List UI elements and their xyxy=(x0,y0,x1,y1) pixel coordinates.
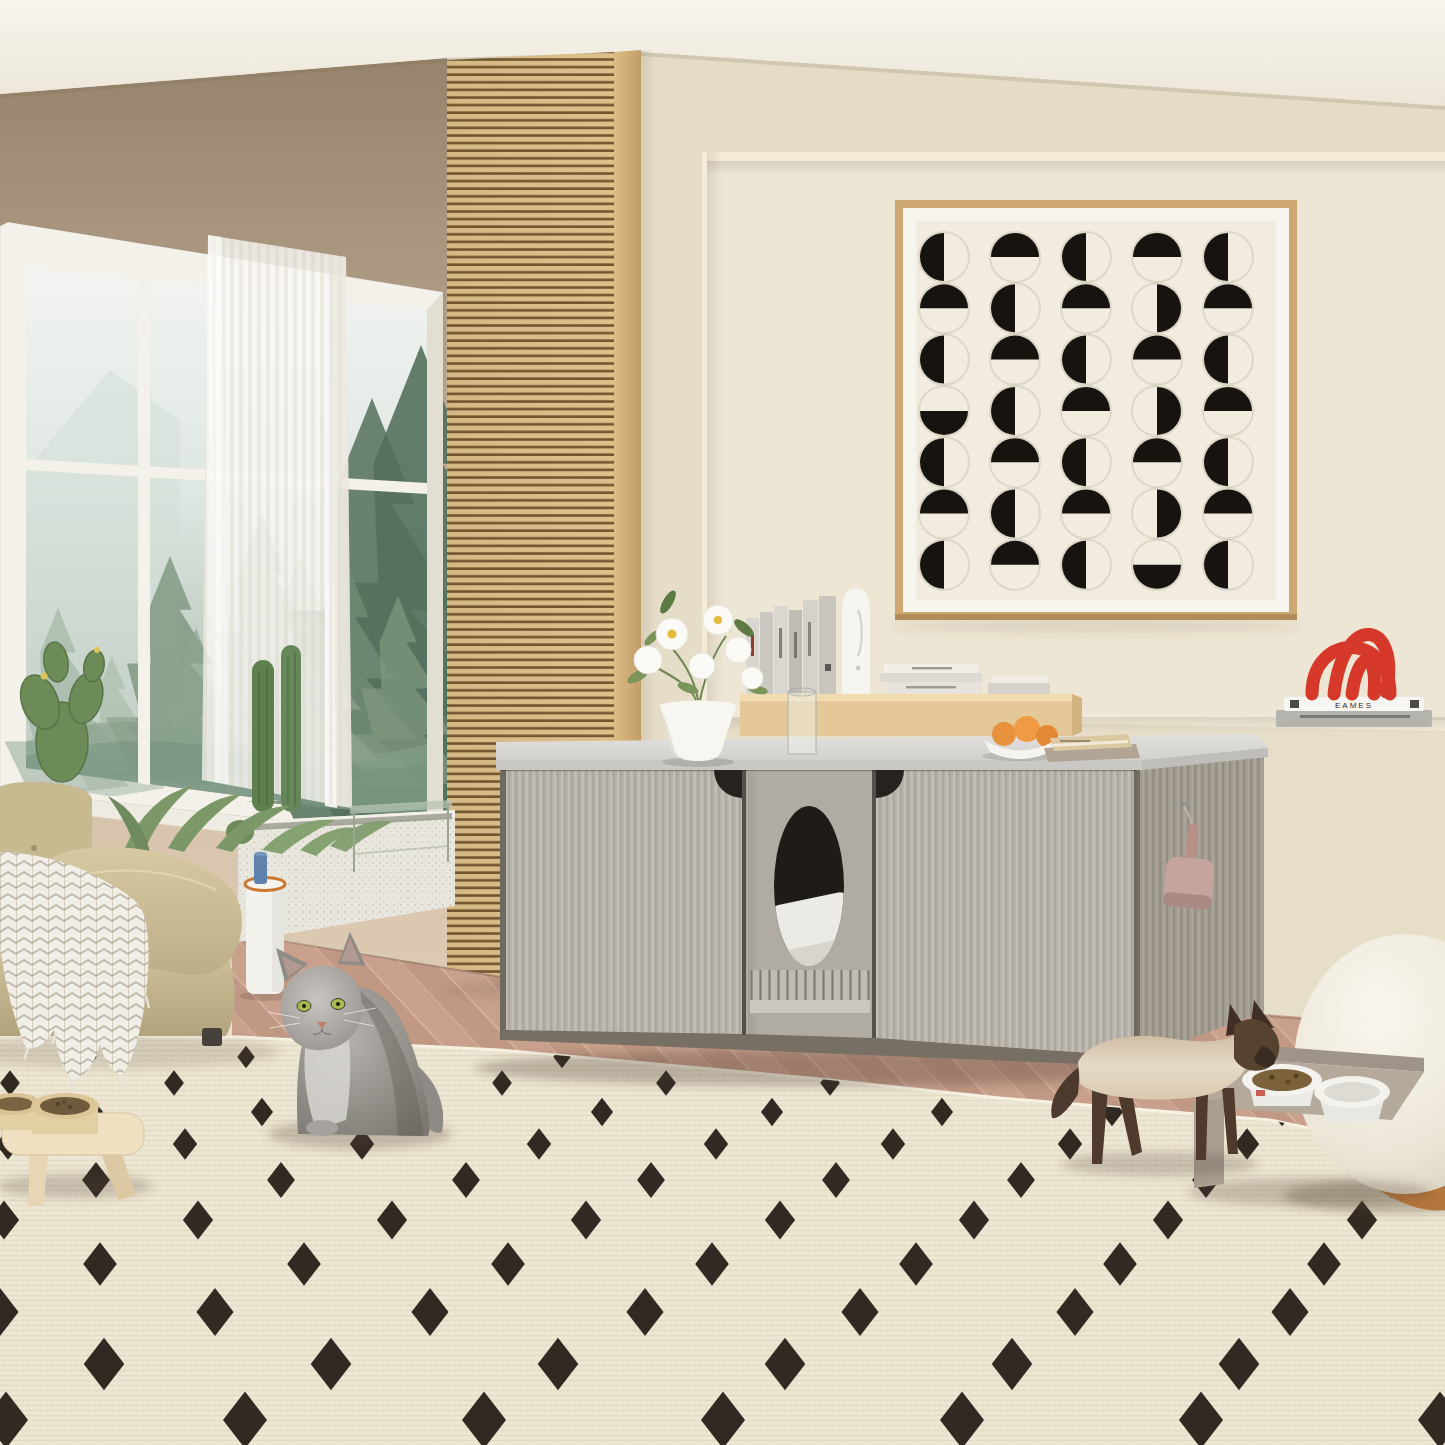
grate-lip xyxy=(750,1000,870,1013)
counter-front-edge xyxy=(496,760,1142,770)
window-jamb-right xyxy=(427,292,443,838)
corner-books xyxy=(1044,734,1140,762)
flower-center xyxy=(668,630,677,639)
feeder-right-shadow xyxy=(1188,1178,1432,1206)
wood-bowl-2 xyxy=(31,1093,99,1134)
cat-head xyxy=(281,966,362,1050)
door-gap-right xyxy=(872,770,876,1038)
book-logo-right xyxy=(1410,700,1419,708)
book-logo-left xyxy=(1290,700,1299,708)
tuft-button xyxy=(31,845,37,851)
living-room-scene: EAMES xyxy=(0,0,1445,1445)
door-gap-left xyxy=(742,770,746,1035)
flower-center-2 xyxy=(714,616,722,624)
art-frame-bottom xyxy=(895,614,1297,620)
blue-cup-top xyxy=(254,852,267,856)
water-bowl xyxy=(1314,1076,1390,1122)
cat-paw xyxy=(306,1120,338,1136)
muntin-v1 xyxy=(138,279,150,785)
niche-left-reveal xyxy=(702,152,707,718)
niche-top-reveal xyxy=(705,152,1445,161)
scene-canvas: EAMES xyxy=(0,0,1445,1445)
cactus-bud xyxy=(41,673,48,680)
book-title: EAMES xyxy=(1335,701,1373,710)
litter-grate xyxy=(750,970,870,1000)
art-shadow xyxy=(890,619,1300,633)
cactus-bud-2 xyxy=(94,647,100,653)
bowl-logo xyxy=(1256,1090,1265,1096)
niche-top-shadow xyxy=(705,161,1445,175)
blue-cup[interactable] xyxy=(254,854,267,884)
ledge-book-gray xyxy=(1276,710,1432,727)
siamese-shadow xyxy=(1062,1152,1258,1176)
face-sculpture xyxy=(842,588,870,694)
wall-art xyxy=(890,200,1300,633)
riser-end xyxy=(1072,694,1082,736)
sofa-foot xyxy=(202,1028,222,1046)
gray-book-text xyxy=(1300,715,1410,718)
glass-vase xyxy=(788,688,816,754)
cabinet-door-right[interactable] xyxy=(876,770,1134,1056)
litter-cabinet[interactable] xyxy=(475,734,1268,1086)
cabinet-door-left[interactable] xyxy=(506,770,742,1034)
